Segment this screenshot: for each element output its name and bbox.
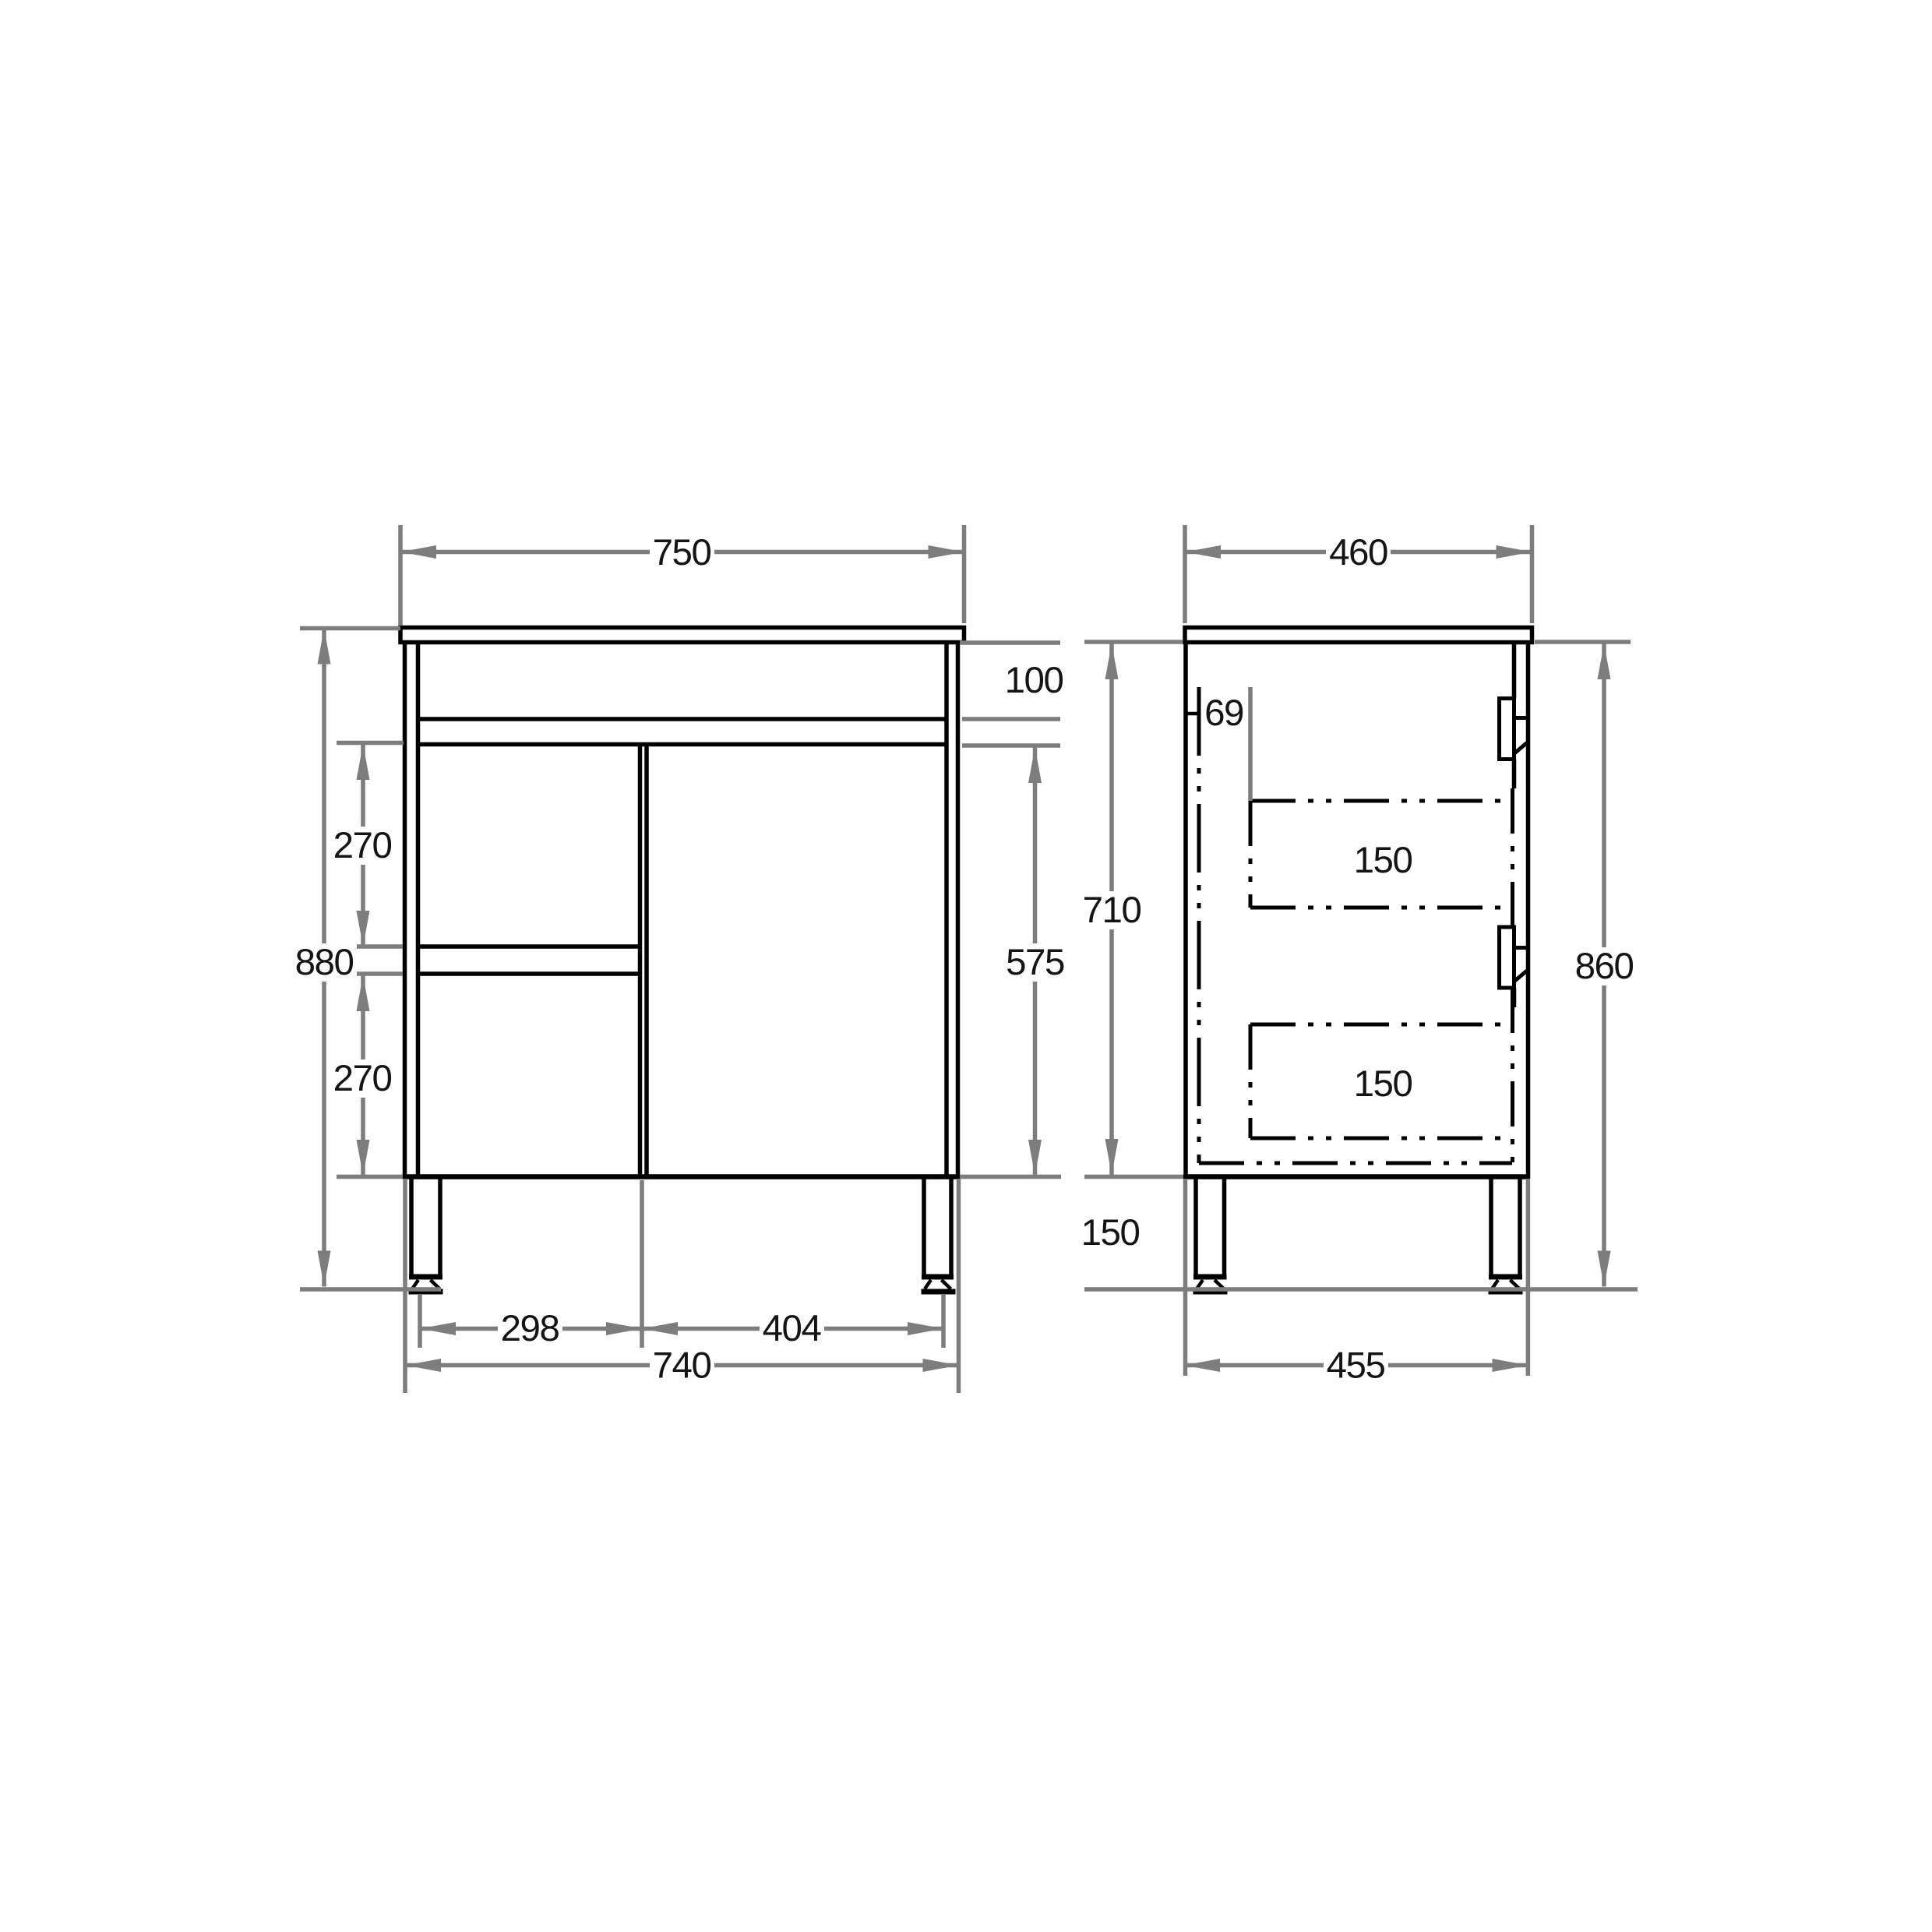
svg-text:575: 575 (1006, 942, 1064, 983)
svg-text:270: 270 (333, 1058, 392, 1099)
svg-text:270: 270 (333, 825, 392, 866)
svg-text:750: 750 (653, 532, 711, 573)
svg-text:740: 740 (653, 1345, 711, 1387)
svg-text:150: 150 (1081, 1212, 1140, 1253)
svg-text:150: 150 (1354, 1063, 1412, 1105)
svg-text:460: 460 (1329, 532, 1387, 573)
svg-text:710: 710 (1083, 890, 1141, 931)
svg-text:455: 455 (1327, 1345, 1385, 1387)
svg-text:880: 880 (295, 942, 354, 983)
svg-text:100: 100 (1005, 660, 1063, 701)
svg-text:404: 404 (763, 1308, 822, 1349)
svg-text:298: 298 (501, 1308, 559, 1349)
svg-text:150: 150 (1354, 840, 1412, 881)
svg-text:69: 69 (1204, 693, 1243, 734)
svg-text:860: 860 (1575, 946, 1634, 987)
